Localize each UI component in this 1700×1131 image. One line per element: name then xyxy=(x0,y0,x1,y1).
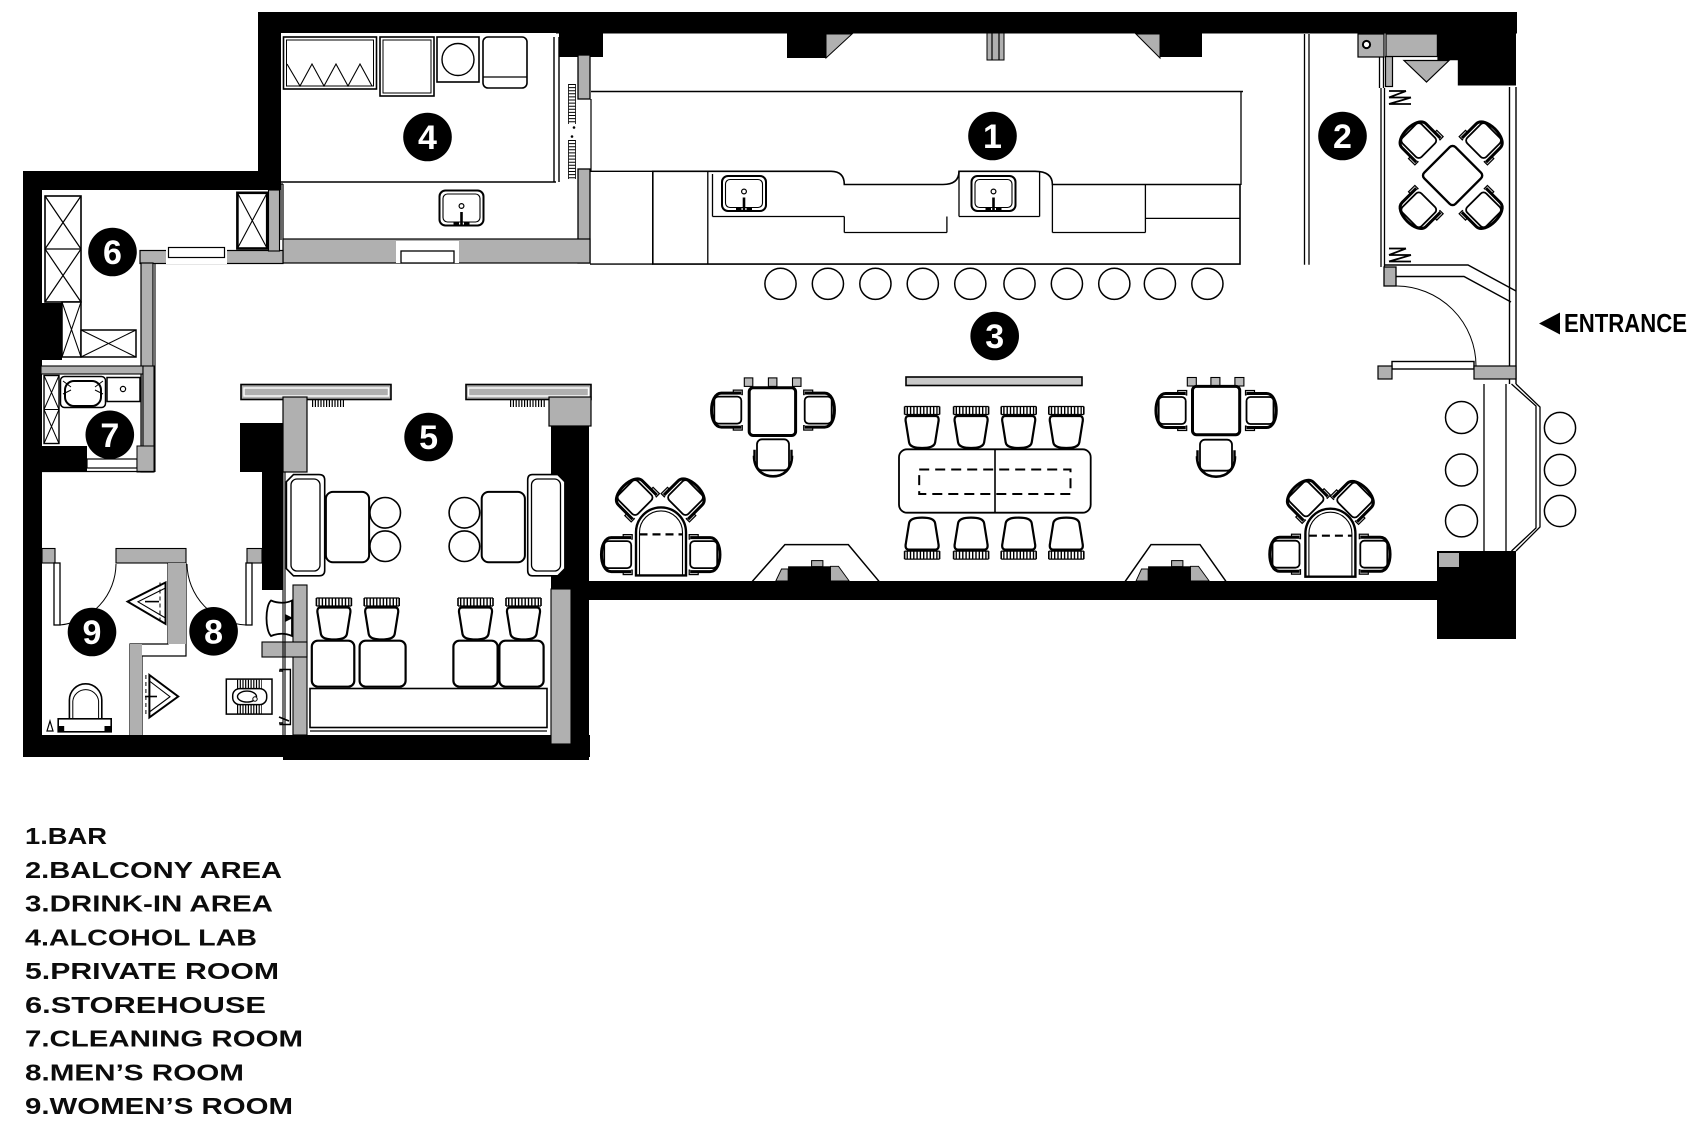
svg-text:5.PRIVATE ROOM: 5.PRIVATE ROOM xyxy=(25,958,279,984)
svg-text:ENTRANCE: ENTRANCE xyxy=(1564,308,1687,338)
svg-text:6.STOREHOUSE: 6.STOREHOUSE xyxy=(25,992,266,1018)
svg-text:3: 3 xyxy=(985,318,1004,356)
svg-text:8.MEN’S ROOM: 8.MEN’S ROOM xyxy=(25,1060,244,1086)
svg-text:2.BALCONY AREA: 2.BALCONY AREA xyxy=(25,857,282,883)
svg-text:4: 4 xyxy=(418,119,437,157)
svg-text:9: 9 xyxy=(83,614,102,652)
svg-text:2: 2 xyxy=(1333,118,1352,156)
svg-text:3.DRINK-IN AREA: 3.DRINK-IN AREA xyxy=(25,891,273,917)
svg-text:7: 7 xyxy=(100,417,119,455)
svg-text:4.ALCOHOL LAB: 4.ALCOHOL LAB xyxy=(25,924,257,950)
svg-text:8: 8 xyxy=(204,613,223,651)
svg-text:6: 6 xyxy=(103,234,122,272)
svg-text:7.CLEANING ROOM: 7.CLEANING ROOM xyxy=(25,1026,303,1052)
svg-text:1.BAR: 1.BAR xyxy=(25,823,107,849)
svg-text:1: 1 xyxy=(983,118,1002,156)
svg-text:5: 5 xyxy=(419,419,438,457)
svg-text:9.WOMEN’S ROOM: 9.WOMEN’S ROOM xyxy=(25,1093,293,1119)
